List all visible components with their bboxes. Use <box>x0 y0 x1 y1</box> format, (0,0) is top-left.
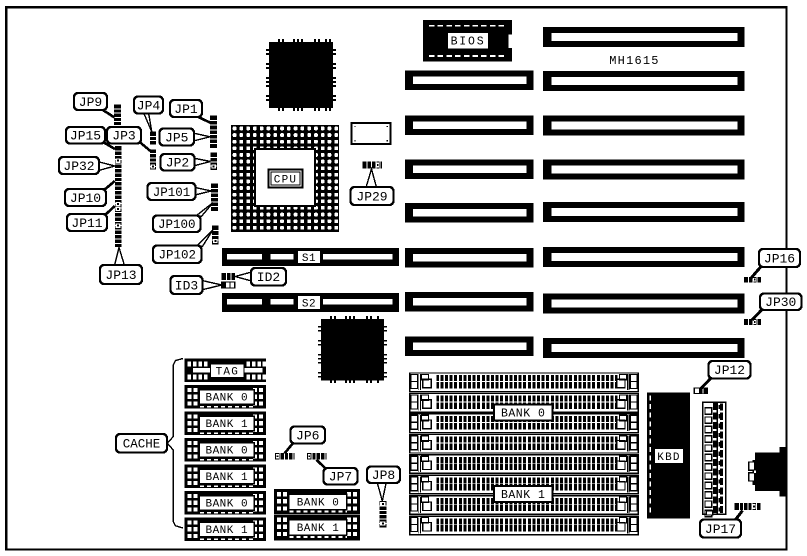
svg-text:JP3: JP3 <box>112 129 135 144</box>
svg-text:ID3: ID3 <box>175 278 198 293</box>
svg-text:ID2: ID2 <box>257 270 280 285</box>
svg-text:BANK 0: BANK 0 <box>205 499 248 511</box>
svg-text:JP17: JP17 <box>705 522 736 537</box>
svg-text:S2: S2 <box>302 298 316 310</box>
svg-text:JP30: JP30 <box>765 295 796 310</box>
svg-text:BANK 0: BANK 0 <box>297 497 340 509</box>
svg-text:JP6: JP6 <box>296 428 319 443</box>
svg-text:JP11: JP11 <box>71 216 102 231</box>
svg-text:BANK 0: BANK 0 <box>205 446 248 458</box>
svg-text:BANK 1: BANK 1 <box>205 525 248 537</box>
svg-text:JP100: JP100 <box>158 218 196 232</box>
svg-text:JP8: JP8 <box>372 468 395 483</box>
svg-text:JP7: JP7 <box>329 470 352 485</box>
svg-text:JP2: JP2 <box>166 156 189 171</box>
svg-text:BANK 1: BANK 1 <box>205 419 248 431</box>
svg-text:BANK 1: BANK 1 <box>501 489 545 502</box>
svg-text:JP15: JP15 <box>70 129 101 144</box>
svg-text:BANK 1: BANK 1 <box>297 523 340 535</box>
svg-text:JP10: JP10 <box>70 191 101 206</box>
svg-text:JP29: JP29 <box>356 189 387 204</box>
svg-text:JP5: JP5 <box>165 130 188 145</box>
svg-text:JP1: JP1 <box>174 102 198 117</box>
svg-text:JP32: JP32 <box>63 159 94 174</box>
svg-text:JP102: JP102 <box>158 249 196 263</box>
svg-text:CACHE: CACHE <box>123 438 161 452</box>
svg-text:BANK 0: BANK 0 <box>205 393 248 405</box>
svg-text:TAG: TAG <box>216 367 239 379</box>
svg-text:JP16: JP16 <box>764 251 795 266</box>
svg-text:JP4: JP4 <box>137 98 161 113</box>
svg-text:BANK 0: BANK 0 <box>501 408 545 421</box>
svg-text:KBD: KBD <box>657 452 680 464</box>
svg-text:JP12: JP12 <box>714 363 745 378</box>
svg-text:BIOS: BIOS <box>451 36 486 49</box>
svg-text:CPU: CPU <box>274 175 297 187</box>
svg-text:JP101: JP101 <box>153 186 191 200</box>
svg-text:BANK 1: BANK 1 <box>205 472 248 484</box>
svg-text:S1: S1 <box>302 253 316 265</box>
svg-text:MH1615: MH1615 <box>609 54 659 68</box>
svg-text:JP9: JP9 <box>79 95 102 110</box>
svg-text:JP13: JP13 <box>105 268 136 283</box>
